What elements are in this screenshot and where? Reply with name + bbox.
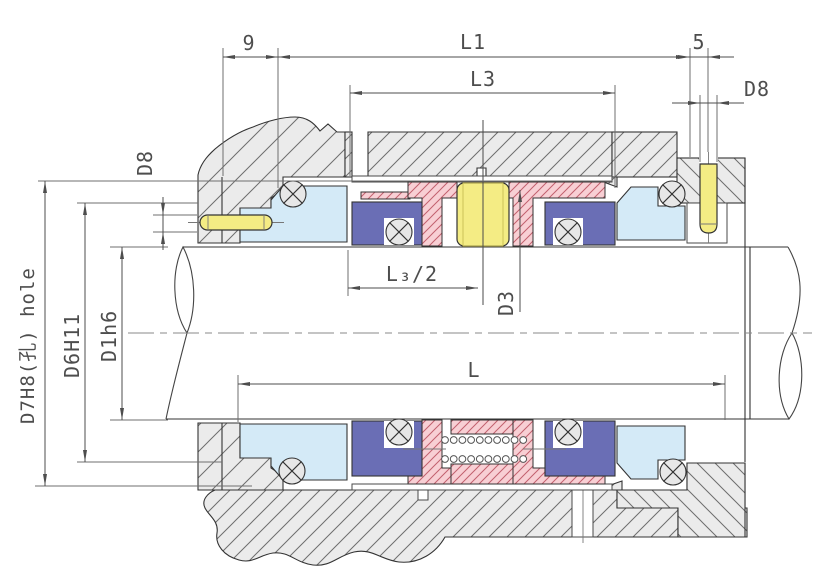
- engineering-drawing-canvas: 9 L1 L3 5 D8 D8 D7H8(孔) hole D6H11 D1h6 …: [0, 0, 823, 588]
- bellows-tail-top: [361, 192, 410, 199]
- dim-label-D6H11: D6H11: [60, 313, 84, 378]
- gland-notch-bottom: [418, 489, 428, 500]
- o-ring-bottom-right-outer: [660, 459, 686, 485]
- o-ring-top-right-inner: [555, 219, 581, 245]
- anti-rotation-pin-left: [188, 215, 284, 230]
- o-ring-top-right-outer: [659, 181, 685, 207]
- gland-plate-top: [368, 132, 612, 177]
- o-ring-bottom-left-outer: [279, 458, 305, 484]
- gland-band-bottom: [204, 490, 678, 565]
- dim-label-L3: L3: [470, 67, 496, 91]
- mechanical-seal-cross-section: 9 L1 L3 5 D8 D8 D7H8(孔) hole D6H11 D1h6 …: [0, 0, 823, 588]
- gland-sliver-top: [345, 132, 352, 177]
- dim-label-9: 9: [242, 31, 255, 55]
- dim-label-D1h6: D1h6: [97, 310, 121, 362]
- o-ring-bottom-right-inner: [555, 419, 581, 445]
- dim-label-5: 5: [692, 30, 705, 54]
- o-ring-top-left-outer: [280, 181, 306, 207]
- dim-label-L: L: [467, 358, 480, 382]
- o-ring-bottom-left-inner: [386, 419, 412, 445]
- dim-label-D8-left: D8: [133, 150, 157, 176]
- dim-label-L3-half: L₃/2: [386, 262, 438, 286]
- dim-label-L1: L1: [460, 30, 486, 54]
- set-screw-pin-right: [700, 152, 717, 243]
- dim-label-D7H8: D7H8(孔) hole: [17, 267, 39, 424]
- shaft-sleeve-bottom: [352, 484, 612, 490]
- gland-plate-top-mid: [612, 132, 677, 177]
- gland-slot-bottom: [572, 490, 593, 537]
- dim-label-D3: D3: [494, 290, 518, 316]
- o-ring-top-left-inner: [386, 219, 412, 245]
- dim-label-D8-top: D8: [744, 77, 770, 101]
